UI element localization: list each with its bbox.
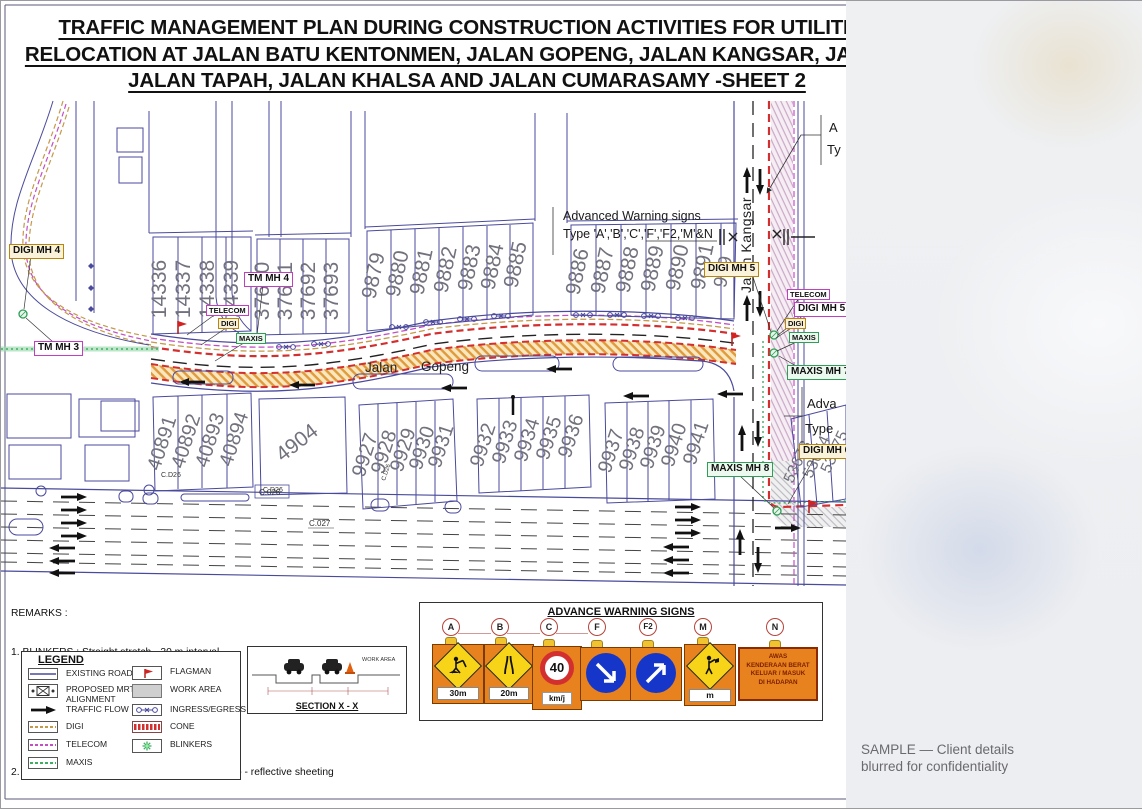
adv-note-corner-ty: Ty	[827, 142, 841, 157]
label-maxis-east: MAXIS	[789, 332, 819, 343]
label-digi-mh5-b: DIGI MH 5	[794, 302, 849, 317]
legend-item-label: BLINKERS	[170, 740, 242, 750]
maxis-line-icon	[28, 757, 58, 769]
adv-note-corner-a: A	[829, 120, 838, 135]
sign-connector-line	[507, 633, 540, 634]
legend-item-label: PROPOSED MRT ALIGNMENT	[66, 685, 138, 704]
ingress-egress-icon	[132, 704, 162, 716]
car-icon	[322, 659, 342, 674]
watermark-line: SAMPLE — Client details	[861, 741, 1014, 758]
label-digi-mh4: DIGI MH 4	[9, 244, 64, 259]
kmj-caption: km/j	[542, 692, 572, 705]
title-line-2: RELOCATION AT JALAN BATU KENTONMEN, JALA…	[1, 42, 933, 69]
legend-item-label: CONE	[170, 722, 242, 732]
work-area-icon	[132, 684, 162, 698]
legend-item-label: WORK AREA	[170, 685, 242, 695]
label-tm-mh4: TM MH 4	[244, 272, 293, 287]
lot-number: 14337	[172, 260, 195, 318]
mrt-alignment-icon	[28, 684, 58, 698]
section-x-x-box: WORK AREA SECTION X - X	[247, 646, 407, 714]
lot-number: 37692	[297, 262, 320, 320]
diagonal-arrow-up-icon	[636, 653, 676, 693]
legend-item-label: MAXIS	[66, 758, 138, 768]
label-digi-mh5-a: DIGI MH 5	[704, 262, 759, 277]
legend-item-label: INGRESS/EGRESS	[170, 705, 242, 715]
men-at-work-icon	[446, 653, 470, 677]
title-line-1: TRAFFIC MANAGEMENT PLAN DURING CONSTRUCT…	[1, 15, 933, 42]
car-icon	[284, 659, 304, 674]
cone-icon	[345, 662, 355, 674]
legend-item-label: EXISTING ROAD	[66, 669, 138, 679]
title-line-3: JALAN TAPAH, JALAN KHALSA AND JALAN CUMA…	[1, 68, 933, 95]
n-sign-line: KELUAR / MASUK	[741, 670, 815, 679]
label-digi-east: DIGI	[785, 318, 806, 329]
heavy-vehicle-warning-text: AWAS KENDERAAN BERAT KELUAR / MASUK DI H…	[741, 653, 815, 687]
sample-watermark: SAMPLE — Client details blurred for conf…	[861, 741, 1014, 775]
legend-item-label: DIGI	[66, 722, 138, 732]
drawing-title: TRAFFIC MANAGEMENT PLAN DURING CONSTRUCT…	[1, 15, 933, 95]
sign-letter-badge: N	[766, 618, 784, 636]
watermark-line: blurred for confidentiality	[861, 758, 1014, 775]
sign-letter-badge: B	[491, 618, 509, 636]
remarks-heading: REMARKS :	[11, 607, 334, 620]
road-name-gopeng: Gopeng	[421, 359, 469, 374]
road-name-kangsar: Jalan Kangsar	[738, 197, 754, 293]
sign-letter-badge: C	[540, 618, 558, 636]
road-name-jalan: Jalan	[365, 360, 397, 375]
highway	[1, 488, 846, 585]
flagman-icon	[698, 653, 722, 677]
section-x-x-label: SECTION X - X	[248, 701, 406, 711]
section-x-x-drawing: WORK AREA	[248, 647, 404, 697]
legend-item-label: FLAGMAN	[170, 667, 242, 677]
telecom-line-icon	[28, 739, 58, 751]
adv-note-br-line1: Adva	[807, 396, 837, 411]
n-sign-line: KENDERAAN BERAT	[741, 662, 815, 671]
sign-distance-caption: 20m	[489, 687, 529, 700]
sign-connector-line	[556, 633, 588, 634]
n-sign-line: DI HADAPAN	[741, 679, 815, 688]
lot-number: 37691	[274, 262, 297, 320]
lot-number: 37693	[320, 262, 343, 320]
adv-note-line1: Advanced Warning signs	[563, 209, 701, 223]
label-telecom-east: TELECOM	[787, 289, 830, 300]
adv-note-line2: Type 'A','B','C','F','F2,'M'&N	[563, 227, 713, 241]
sign-letter-badge: M	[694, 618, 712, 636]
traffic-plan-sheet: 14336 14337 14338 14339 37690 37691 3769…	[0, 0, 1142, 809]
advance-warning-signs-panel: ADVANCE WARNING SIGNS A 30m B 20m C 40 k…	[419, 602, 823, 721]
legend-item-label: TRAFFIC FLOW	[66, 705, 138, 715]
cone-icon	[132, 721, 162, 733]
sign-distance-caption: 30m	[437, 687, 479, 700]
adv-note-br-line2: Type	[805, 421, 833, 436]
speed-limit-40-sign: 40	[540, 651, 574, 685]
advance-warning-signs-title: ADVANCE WARNING SIGNS	[420, 606, 822, 618]
chainage-label: C.026	[259, 488, 281, 497]
chainage-label: C.027	[309, 519, 331, 528]
sign-letter-badge: F	[588, 618, 606, 636]
legend: LEGEND EXISTING ROAD PROPOSED MRT ALIGNM…	[21, 651, 241, 780]
sign-letter-badge: A	[442, 618, 460, 636]
existing-road-icon	[28, 668, 58, 680]
label-maxis-mh8: MAXIS MH 8	[707, 462, 773, 477]
blurred-confidential-region	[846, 1, 1142, 808]
traffic-flow-icon	[28, 704, 58, 716]
sign-letter-badge: F2	[639, 618, 657, 636]
legend-item-label: TELECOM	[66, 740, 138, 750]
label-digi-west: DIGI	[218, 318, 239, 329]
blinkers-icon	[132, 739, 162, 753]
flagman-icon	[132, 666, 162, 680]
lot-number: 14336	[148, 260, 171, 318]
label-maxis-mh7: MAXIS MH 7	[787, 365, 853, 380]
n-sign-line: AWAS	[741, 653, 815, 662]
lot-number: 4904	[272, 419, 323, 466]
digi-line-icon	[28, 721, 58, 733]
diagonal-arrow-down-icon	[586, 653, 626, 693]
label-telecom-west: TELECOM	[206, 305, 249, 316]
section-work-area-label: WORK AREA	[362, 657, 396, 663]
label-tm-mh3: TM MH 3	[34, 341, 83, 356]
label-maxis-west: MAXIS	[236, 333, 266, 344]
legend-heading: LEGEND	[38, 654, 84, 666]
chainage-label: C.D26	[161, 472, 181, 479]
road-narrows-icon	[497, 653, 521, 677]
sign-connector-line	[458, 633, 491, 634]
sign-distance-caption: m	[689, 689, 731, 702]
